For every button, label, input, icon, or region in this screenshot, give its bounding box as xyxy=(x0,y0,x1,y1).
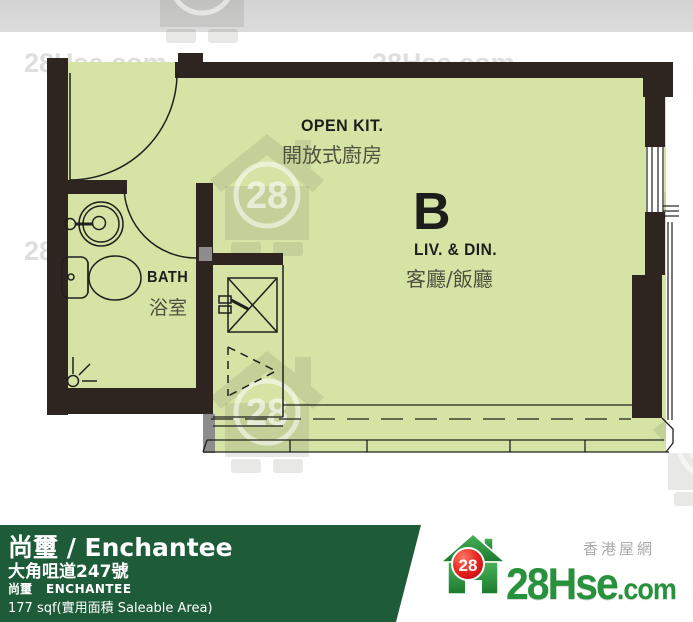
estate-name-en: ENCHANTEE xyxy=(46,582,132,596)
brand-house-icon: 28 xyxy=(440,533,506,601)
closet-fixture xyxy=(213,265,283,426)
bathroom-door xyxy=(124,186,196,258)
brand-tagline: 香港屋網 xyxy=(583,538,655,559)
saleable-area: 177 sqf(實用面積 Saleable Area) xyxy=(8,597,213,616)
label-bath-en: BATH xyxy=(147,269,188,287)
entrance-door xyxy=(70,73,177,180)
svg-text:28: 28 xyxy=(459,556,478,575)
label-unit-letter: B xyxy=(413,186,451,238)
bottom-window-band xyxy=(203,405,673,452)
label-open-kitchen-zh: 開放式廚房 xyxy=(282,139,382,168)
label-living-dining-zh: 客廳/飯廳 xyxy=(406,263,493,292)
toilet-fixture xyxy=(62,256,141,300)
floorplan-image: 28Hse.com 28Hse.com 28Hse.com 28Hse.com … xyxy=(0,0,693,622)
shower-symbol xyxy=(68,357,98,387)
brand-wordmark: 28Hse.com xyxy=(506,559,676,610)
estate-name-zh: 尚璽 xyxy=(8,582,32,596)
brand-logo: 28 28Hse.com 香港屋網 xyxy=(440,533,690,618)
estate-names: 尚璽ENCHANTEE xyxy=(8,580,132,597)
label-bath-zh: 浴室 xyxy=(149,293,187,320)
floorplan-linework xyxy=(0,0,693,525)
label-living-dining-en: LIV. & DIN. xyxy=(414,241,497,260)
footer-info-bar: 尚璽 / Enchantee 大角咀道247號 尚璽ENCHANTEE 177 … xyxy=(0,525,430,622)
estate-address: 大角咀道247號 xyxy=(8,557,129,582)
sink-fixture xyxy=(65,202,124,246)
footer: 尚璽 / Enchantee 大角咀道247號 尚璽ENCHANTEE 177 … xyxy=(0,525,693,622)
right-wall-window xyxy=(647,147,679,420)
label-open-kitchen-en: OPEN KIT. xyxy=(301,116,383,136)
